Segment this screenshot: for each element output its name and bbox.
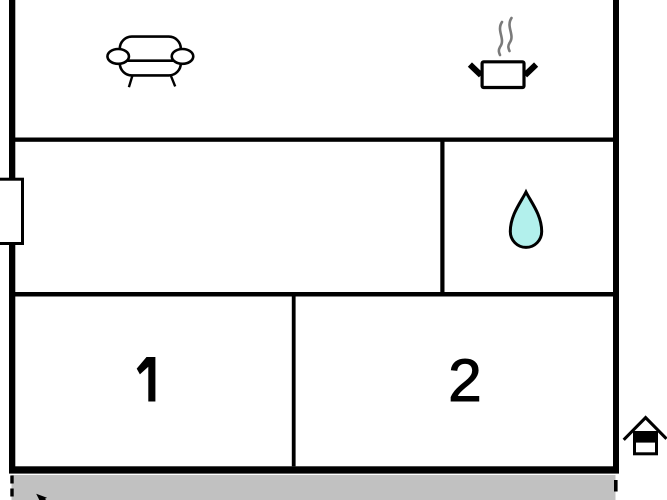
svg-text:2: 2 bbox=[448, 346, 482, 414]
